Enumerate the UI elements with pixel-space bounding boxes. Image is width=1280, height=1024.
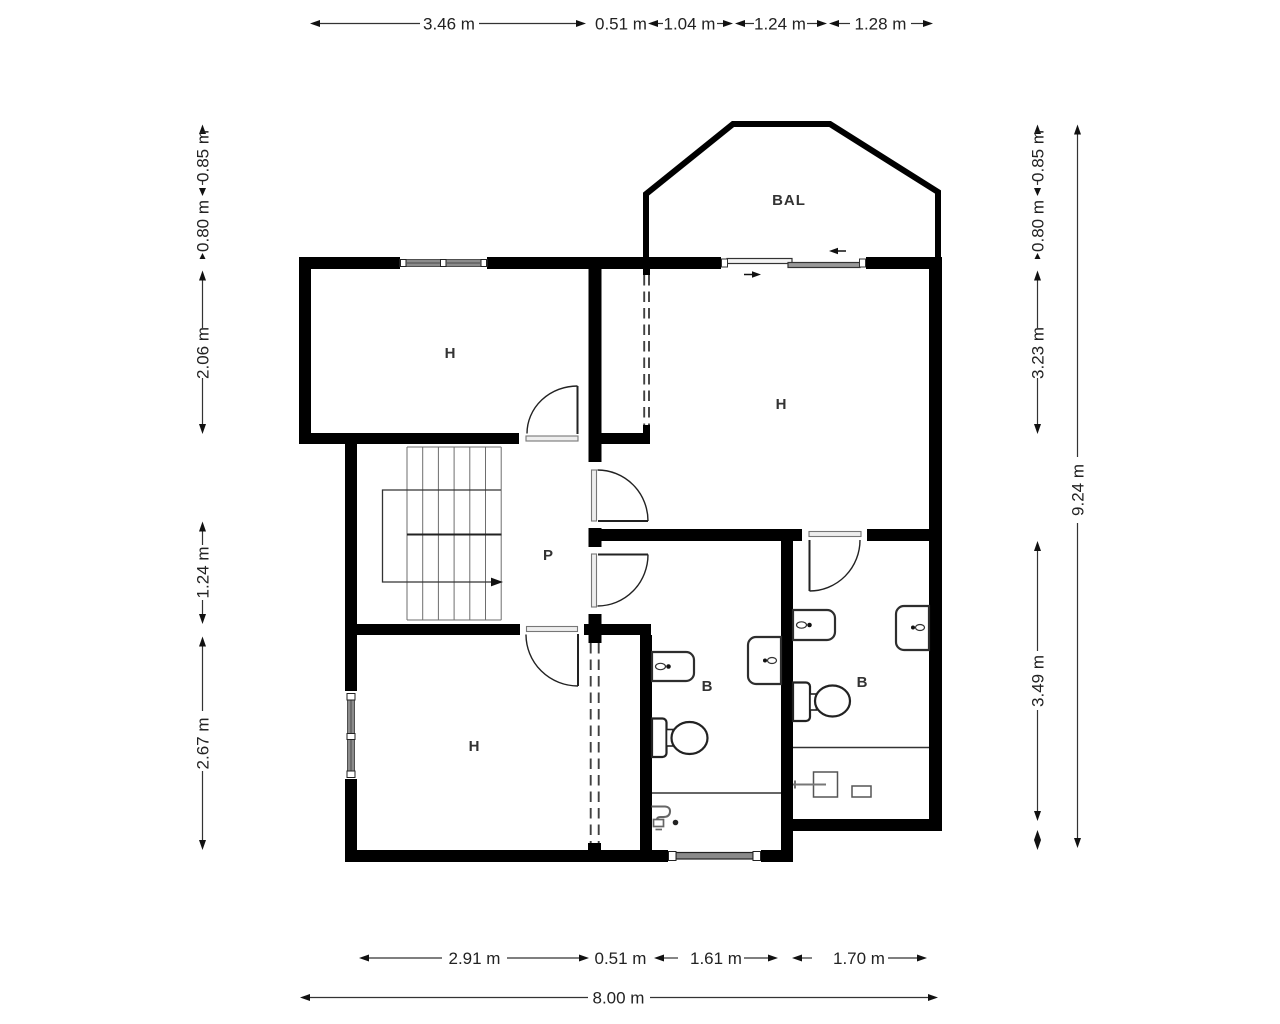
- svg-text:0.85 m: 0.85 m: [194, 130, 213, 182]
- svg-text:3.46 m: 3.46 m: [423, 15, 475, 34]
- svg-text:H: H: [445, 345, 456, 362]
- svg-text:BAL: BAL: [772, 192, 806, 209]
- svg-text:2.91 m: 2.91 m: [449, 949, 501, 968]
- svg-text:B: B: [702, 678, 713, 695]
- svg-text:H: H: [469, 738, 480, 755]
- svg-text:8.00 m: 8.00 m: [593, 989, 645, 1008]
- svg-text:2.67 m: 2.67 m: [194, 718, 213, 770]
- svg-text:3.23 m: 3.23 m: [1029, 327, 1048, 379]
- svg-text:1.24 m: 1.24 m: [194, 547, 213, 599]
- svg-text:1.70 m: 1.70 m: [833, 949, 885, 968]
- svg-text:0.80 m: 0.80 m: [1029, 200, 1048, 252]
- svg-text:1.24 m: 1.24 m: [754, 15, 806, 34]
- svg-text:3.49 m: 3.49 m: [1029, 655, 1048, 707]
- svg-text:2.06 m: 2.06 m: [194, 327, 213, 379]
- svg-text:B: B: [857, 674, 868, 691]
- svg-text:1.28 m: 1.28 m: [855, 15, 907, 34]
- svg-text:0.80 m: 0.80 m: [194, 200, 213, 252]
- svg-text:H: H: [776, 396, 787, 413]
- svg-text:1.04 m: 1.04 m: [664, 15, 716, 34]
- svg-text:1.61 m: 1.61 m: [690, 949, 742, 968]
- svg-text:0.85 m: 0.85 m: [1029, 130, 1048, 182]
- svg-text:0.51 m: 0.51 m: [595, 15, 647, 34]
- svg-text:P: P: [543, 547, 553, 564]
- svg-text:0.51 m: 0.51 m: [595, 949, 647, 968]
- svg-text:9.24 m: 9.24 m: [1069, 464, 1088, 516]
